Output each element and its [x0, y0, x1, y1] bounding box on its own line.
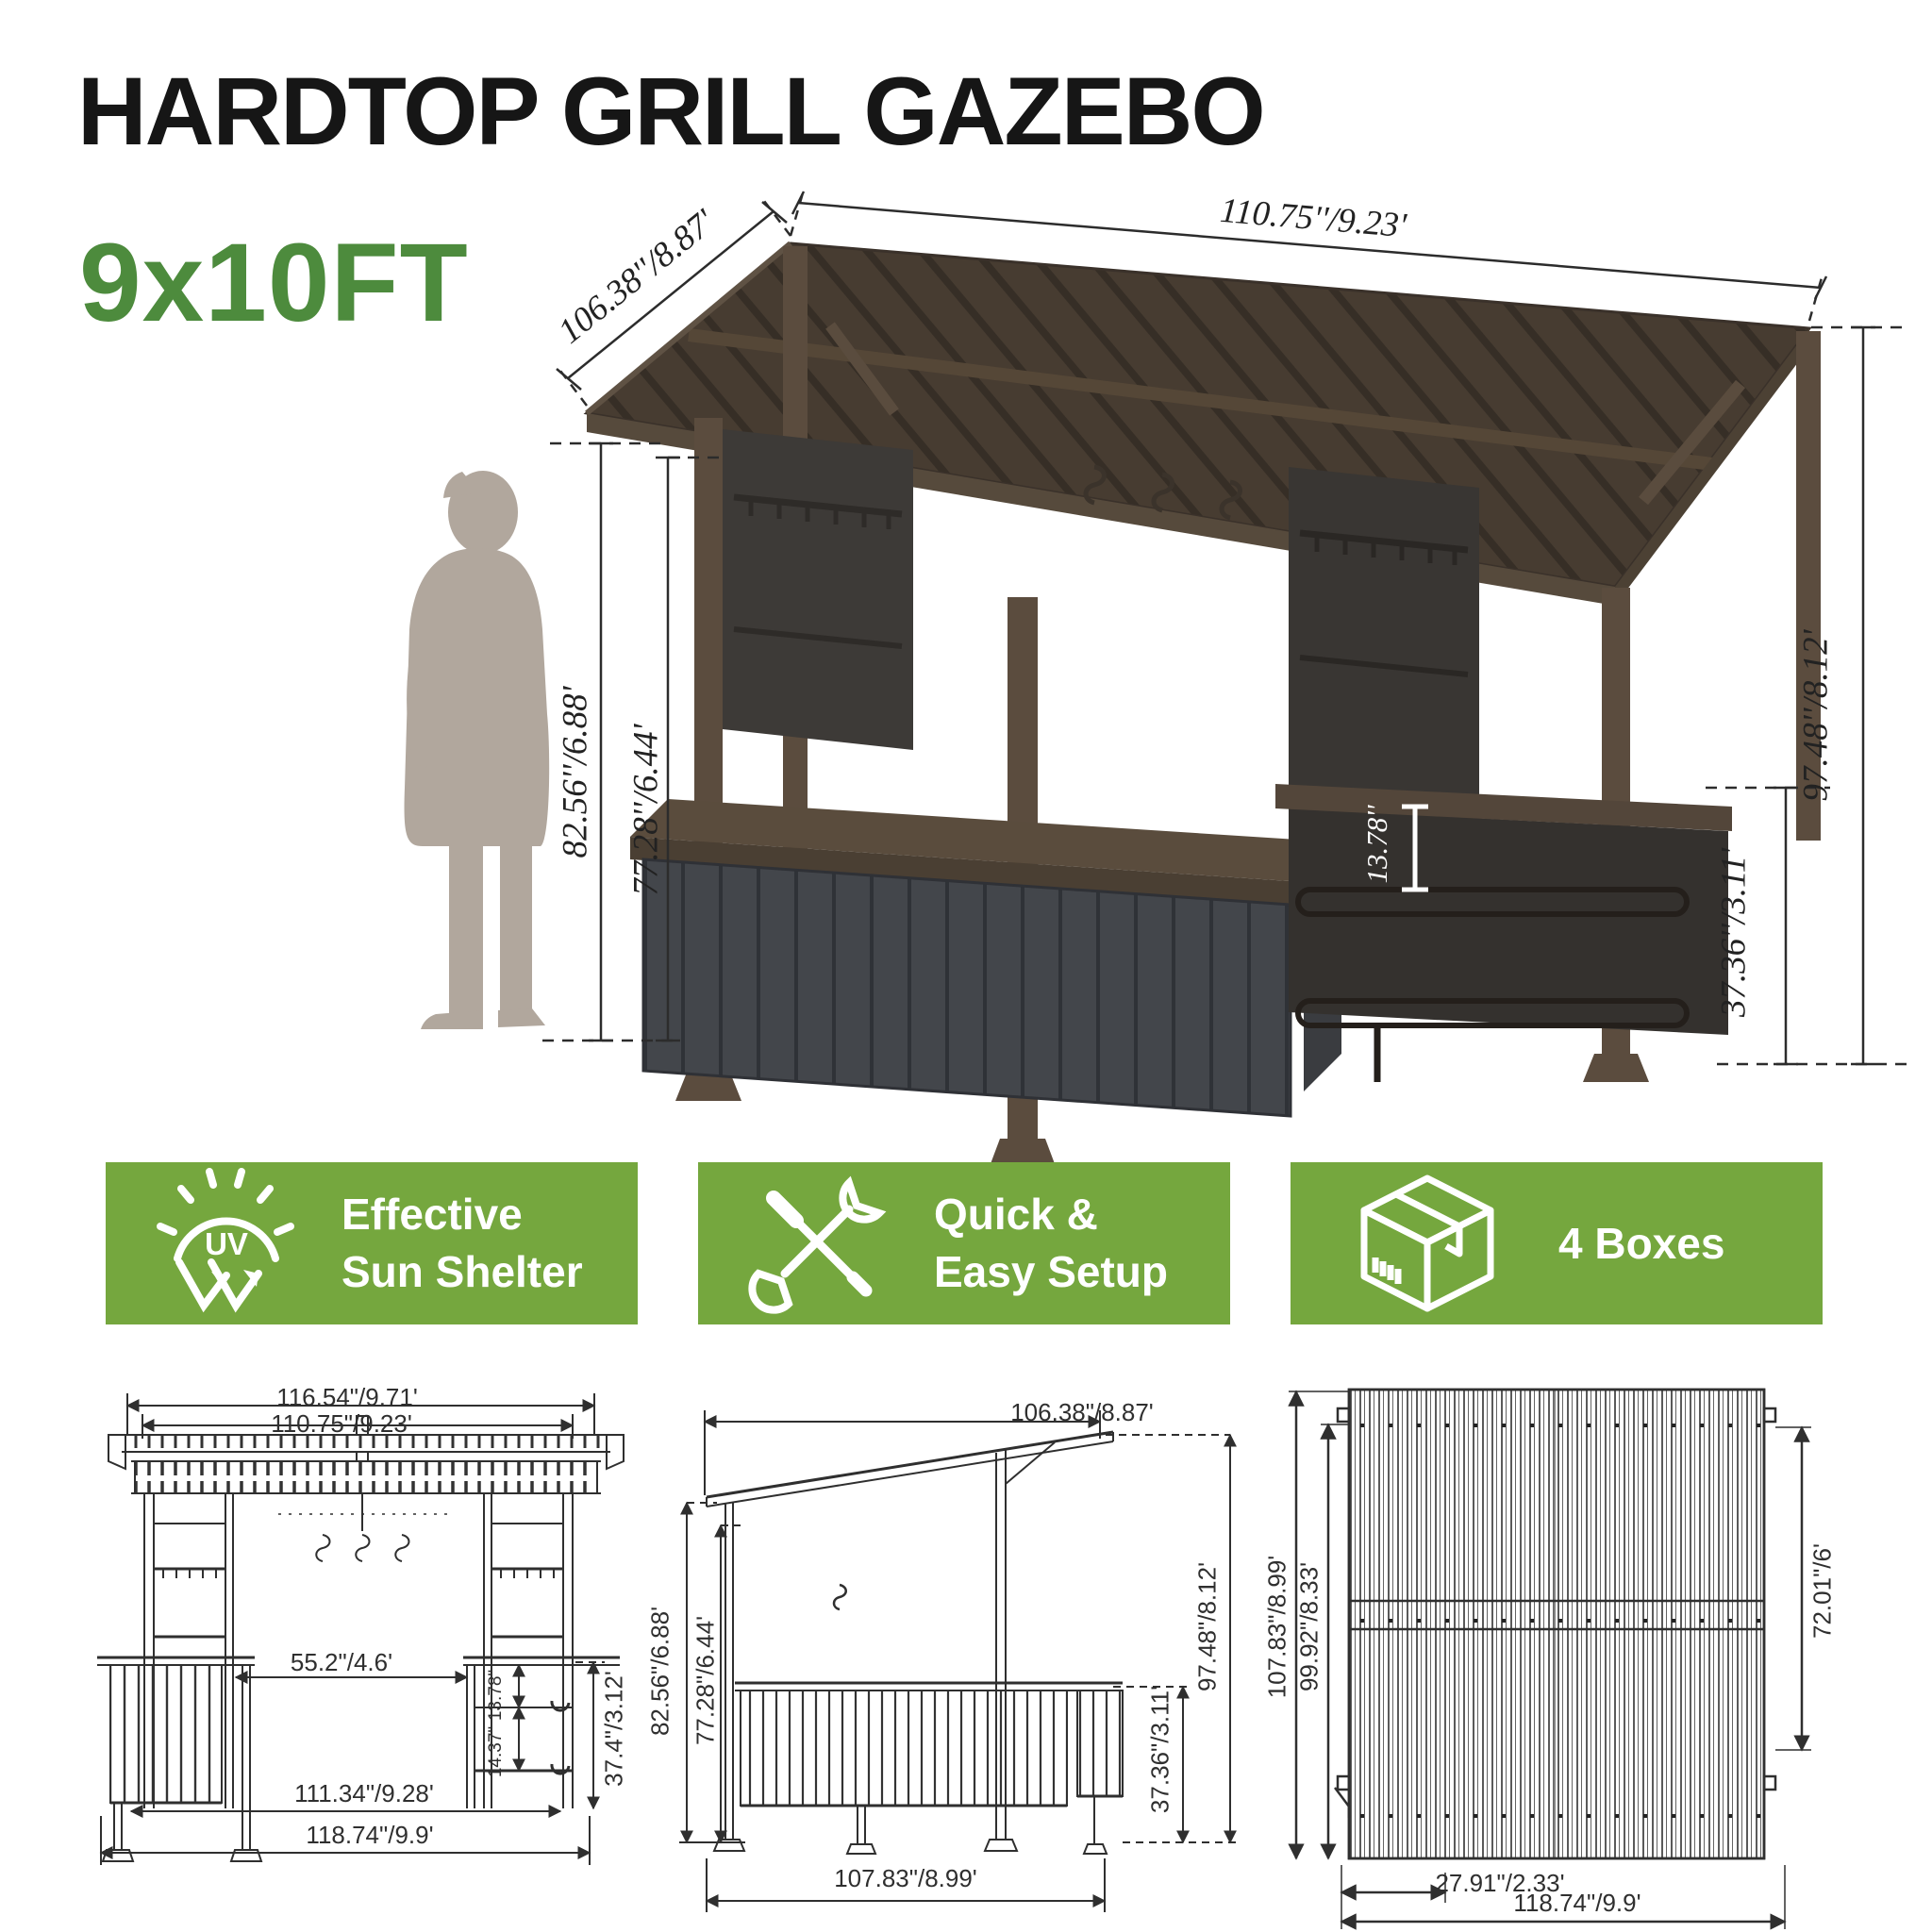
sv-dim-height-inner: 77.28"/6.44': [691, 1530, 721, 1832]
feature-banner-sun-shelter: UV Effective Sun Shelter: [106, 1162, 638, 1324]
feature-text: Quick & Easy Setup: [934, 1186, 1168, 1300]
fv-dim-bottom-outer: 118.74"/9.9': [257, 1821, 483, 1850]
human-silhouette-figure: [405, 471, 550, 1029]
fv-dim-opening: 55.2"/4.6': [247, 1648, 436, 1677]
tv-dim-bottom: 118.74"/9.9': [1464, 1889, 1690, 1918]
left-wall-panel: [723, 429, 913, 750]
right-bar-counter: [1275, 784, 1732, 1082]
sv-dim-height-right: 97.48"/8.12': [1193, 1476, 1223, 1778]
page-title: HARDTOP GRILL GAZEBO: [77, 57, 1264, 167]
feature-line1: Effective: [341, 1186, 583, 1243]
feature-line1: 4 Boxes: [1558, 1215, 1724, 1273]
fv-dim-shelf-mid: 14.37": [486, 1695, 507, 1808]
gazebo-3d-illustration: [264, 184, 1924, 1174]
dim-counter-height-right: 37.36''/3.11': [1714, 782, 1755, 1084]
feature-banner-easy-setup: Quick & Easy Setup: [698, 1162, 1230, 1324]
fv-dim-bottom-inner: 111.34"/9.28': [251, 1779, 477, 1808]
dim-height-left-inner: 77.28''/6.44': [626, 659, 667, 961]
feature-line1: Quick &: [934, 1186, 1168, 1243]
tools-icon: [743, 1168, 894, 1319]
uv-sun-icon: UV: [151, 1168, 302, 1319]
sv-dim-counter: 37.36"/3.11': [1146, 1599, 1175, 1901]
fv-dim-top-inner: 110.75"/9.23': [228, 1409, 455, 1439]
dim-shelf-gap: 13.78'': [1360, 750, 1394, 939]
sv-dim-height-outer: 82.56"/6.88': [646, 1521, 675, 1823]
feature-text: Effective Sun Shelter: [341, 1186, 583, 1300]
feature-line2: Sun Shelter: [341, 1243, 583, 1301]
fv-dim-top-outer: 116.54"/9.71': [234, 1383, 460, 1412]
dim-height-right: 97.48''/8.12': [1796, 565, 1837, 867]
feature-line2: Easy Setup: [934, 1243, 1168, 1301]
tv-dim-right: 72.01"/6': [1808, 1441, 1838, 1742]
sv-dim-bottom: 107.83"/8.99': [792, 1864, 1019, 1893]
infographic-page: HARDTOP GRILL GAZEBO 9x10FT: [0, 0, 1932, 1932]
tv-dim-side-inner: 99.92"/8.33': [1295, 1476, 1324, 1778]
tv-dim-side-outer: 107.83"/8.99': [1263, 1476, 1292, 1778]
feature-banner-boxes: 4 Boxes: [1291, 1162, 1823, 1324]
feature-text: 4 Boxes: [1558, 1215, 1724, 1273]
top-view-drawing: [1264, 1382, 1887, 1932]
box-icon: [1347, 1163, 1507, 1324]
sv-dim-top: 106.38"/8.87': [969, 1398, 1195, 1427]
left-bar-counter: [630, 799, 1341, 1116]
fv-dim-counter-height: 37.4"/3.12': [600, 1616, 629, 1842]
dim-height-left-outer: 82.56''/6.88': [556, 622, 596, 924]
uv-icon-label: UV: [205, 1226, 248, 1261]
